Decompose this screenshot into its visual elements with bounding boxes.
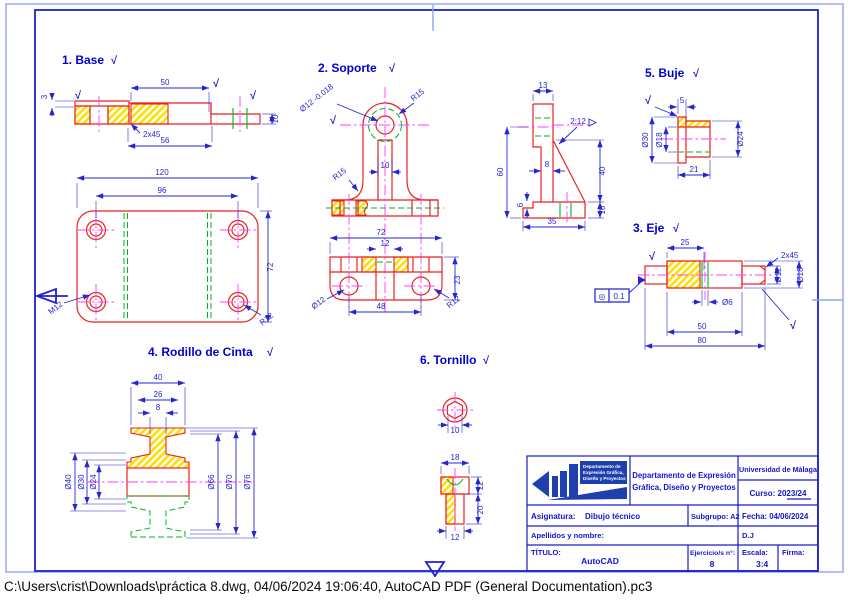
tornillo-dim-10: 10 [451,426,460,435]
soporte-side-view: 13 60 8 40 10 6 35 2:12 [496,81,607,231]
surface-finish-icon: √ [213,78,220,90]
soporte-side-8: 8 [545,160,550,169]
soporte-title: 2. Soporte [318,61,377,75]
soporte-dim-48: 48 [377,302,386,311]
base-plan-view: 120 96 72 M12 R12 [47,168,276,327]
tornillo-title: 6. Tornillo [420,353,476,367]
soporte-side-13: 13 [539,81,548,90]
rodillo-view: 40 26 8 Ø40 Ø30 Ø24 Ø66 Ø70 Ø76 [64,373,258,538]
surface-finish-icon: √ [267,347,274,359]
soporte-taper-note: 2:12 [570,117,586,126]
rodillo-dia30: Ø30 [77,474,86,490]
firma-label: Firma: [782,548,805,557]
part-base: 1. Base √ √ √ √ 50 3 2x45 56 10 [40,53,280,327]
surface-finish-icon: √ [790,320,797,332]
base-dim-10: 10 [271,114,280,123]
curso-value: Curso: 2023/24 [750,489,807,498]
eje-dia6: Ø6 [722,298,733,307]
base-dim-56: 56 [161,136,170,145]
buje-title: 5. Buje [645,66,685,80]
rodillo-dia66: Ø66 [207,474,216,490]
tornillo-dim-18: 18 [451,453,460,462]
buje-dia24: Ø24 [736,131,745,147]
buje-dim-21: 21 [690,165,699,174]
eje-view: √ √ 25 2x45 Ø12 Ø18 Ø6 50 80 ◎ 0.1 [595,238,805,350]
eje-chamfer-note: 2x45 [781,251,799,260]
part-buje: 5. Buje √ √ 5 Ø30 Ø18 Ø24 21 [641,66,745,179]
subgrupo-value: Subgrupo: A2 [691,512,740,521]
base-dim-3: 3 [40,94,49,99]
logo-text-line3: Diseño y Proyectos [583,476,626,481]
surface-finish-icon: √ [645,95,652,107]
escala-value: 3:4 [756,559,769,569]
asignatura-value: Dibujo técnico [585,512,640,521]
eje-dim-80: 80 [698,336,707,345]
rodillo-dia40: Ø40 [64,474,73,490]
tornillo-top-view: 10 [437,392,473,435]
soporte-hole-dim: Ø12 [310,294,328,311]
soporte-radius-dim: R12 [445,294,463,310]
plot-file-path: C:\Users\crist\Downloads\práctica 8.dwg,… [4,579,652,594]
soporte-r15-left: R15 [331,166,349,182]
logo-text-line2: Expresión Gráfica, [583,470,624,475]
logo-text-line1: Departamento de [583,464,621,469]
eje-dia18: Ø18 [796,267,805,283]
part-soporte: 2. Soporte √ √ Ø12 -0.018 R15 R15 10 [298,61,607,316]
surface-finish-icon: √ [693,68,700,80]
surface-finish-icon: √ [250,90,257,102]
rodillo-dia76: Ø76 [243,474,252,490]
base-dim-72: 72 [266,262,275,271]
fecha-value: Fecha: 04/06/2024 [742,512,809,521]
buje-dia18: Ø18 [655,132,664,148]
base-dim-96: 96 [158,186,167,195]
surface-finish-icon: √ [389,63,396,75]
tornillo-dim-12-shank: 12 [451,533,460,542]
buje-view: √ 5 Ø30 Ø18 Ø24 21 [641,95,745,179]
soporte-dim-12: 12 [381,239,390,248]
base-title: 1. Base [62,53,104,67]
escala-label: Escala: [742,548,768,557]
tornillo-dim-20: 20 [476,505,485,514]
soporte-bottom-view: 72 12 23 48 Ø12 R12 [310,228,463,316]
buje-dim-5: 5 [680,96,685,105]
surface-finish-icon: √ [330,115,337,127]
department-name-line2: Gráfica, Diseño y Proyectos [632,483,736,492]
title-block: Departamento de Expresión Gráfica, Diseñ… [527,456,818,571]
rodillo-dim-40: 40 [154,373,163,382]
eje-dim-50: 50 [698,322,707,331]
soporte-r15-top: R15 [409,87,427,103]
part-rodillo: 4. Rodillo de Cinta √ 40 26 8 Ø40 Ø30 Ø2… [64,345,274,538]
soporte-side-6: 6 [516,202,525,207]
soporte-hole-label: Ø12 -0.018 [298,82,336,114]
soporte-slot-dim: 10 [381,161,390,170]
eje-dia12: Ø12 [774,267,783,283]
soporte-dim-72: 72 [377,228,386,237]
taper-flag-icon [589,119,596,126]
soporte-dim-23: 23 [453,275,462,284]
soporte-side-60: 60 [496,167,505,176]
buje-dia30: Ø30 [641,132,650,148]
eje-dim-25: 25 [681,238,690,247]
surface-finish-icon: √ [673,223,680,235]
rodillo-dia70: Ø70 [225,474,234,490]
base-chamfer-note: 2x45 [143,130,161,139]
part-tornillo: 6. Tornillo √ 10 18 12 20 12 [420,353,490,542]
soporte-side-35: 35 [548,217,557,226]
soporte-side-40: 40 [598,166,607,175]
titulo-value: AutoCAD [581,556,619,566]
concentricity-icon: ◎ [599,292,606,301]
tornillo-front-view: 18 12 20 12 [437,453,485,542]
tolerance-value: 0.1 [613,292,625,301]
rodillo-dim-8: 8 [156,403,161,412]
author-initials: D.J [742,531,754,540]
feature-control-frame: ◎ 0.1 [595,276,646,302]
base-radius-label: R12 [258,311,276,327]
surface-finish-icon: √ [649,251,656,263]
bottom-centering-mark [426,562,444,576]
surface-finish-icon: √ [483,355,490,367]
surface-finish-icon: √ [75,90,82,102]
base-dim-50: 50 [161,78,170,87]
tornillo-dim-12-head: 12 [476,481,485,490]
base-dim-120: 120 [155,168,169,177]
base-front-view: √ √ √ 50 3 2x45 56 10 [40,78,280,146]
rodillo-dim-26: 26 [154,390,163,399]
eje-title: 3. Eje [633,221,665,235]
ejercicio-label: Ejercicio/s n°: [690,549,735,557]
university-name: Universidad de Málaga [739,465,818,474]
department-name-line1: Departamento de Expresión [632,471,736,480]
plotted-drawing-page: 1. Base √ √ √ √ 50 3 2x45 56 10 [0,0,848,600]
part-eje: 3. Eje √ √ √ 25 2x45 Ø12 Ø18 Ø6 50 [595,221,805,350]
department-logo: Departamento de Expresión Gráfica, Diseñ… [532,461,627,500]
ejercicio-value: 8 [710,559,715,569]
rodillo-title: 4. Rodillo de Cinta [148,345,253,359]
surface-finish-icon: √ [111,55,118,67]
base-thread-label: M12 [47,299,65,316]
left-centering-mark [37,289,68,303]
rodillo-dia24: Ø24 [89,474,98,490]
soporte-side-10: 10 [598,205,607,214]
asignatura-label: Asignatura: [531,512,575,521]
apellidos-label: Apellidos y nombre: [531,531,604,540]
titulo-label: TÍTULO: [531,548,561,557]
